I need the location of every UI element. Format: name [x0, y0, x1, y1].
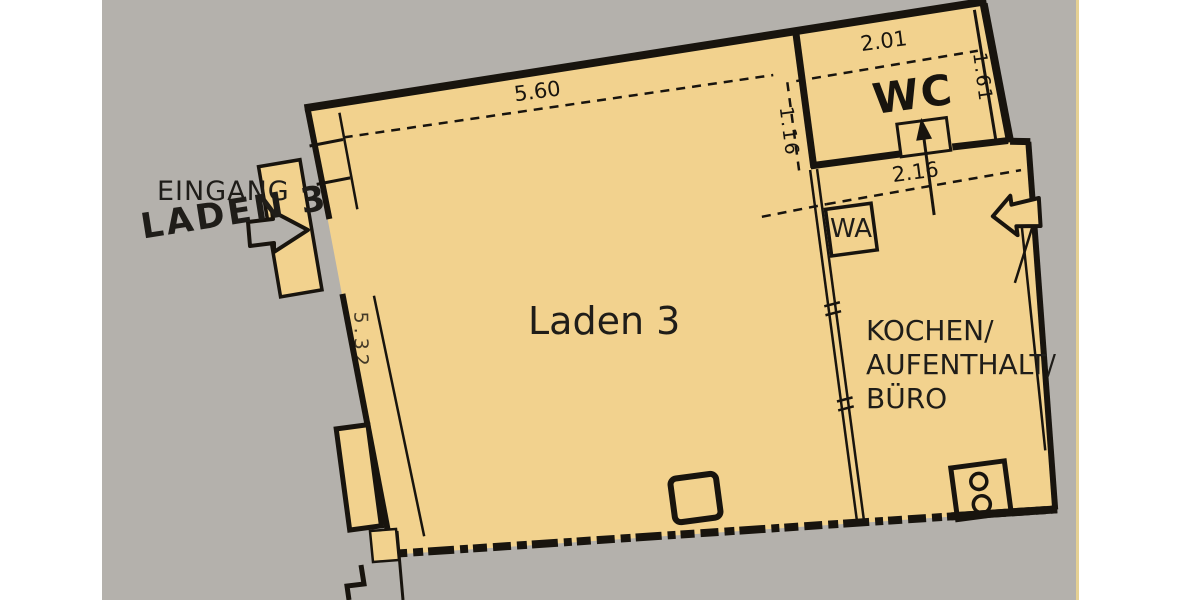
corner-box — [370, 529, 399, 562]
washer-label: WA — [830, 214, 872, 244]
corner-step-line — [347, 565, 364, 600]
dim-left-height: 5.32 — [349, 311, 372, 370]
side-room-label-line3: BÜRO — [866, 382, 1056, 416]
main-room-label: Laden 3 — [528, 299, 680, 343]
side-room-label: KOCHEN/ AUFENTHALT/ BÜRO — [866, 314, 1056, 416]
pillar — [670, 473, 721, 523]
side-room-label-line2: AUFENTHALT/ — [866, 348, 1056, 382]
side-room-label-line1: KOCHEN/ — [866, 314, 1056, 348]
